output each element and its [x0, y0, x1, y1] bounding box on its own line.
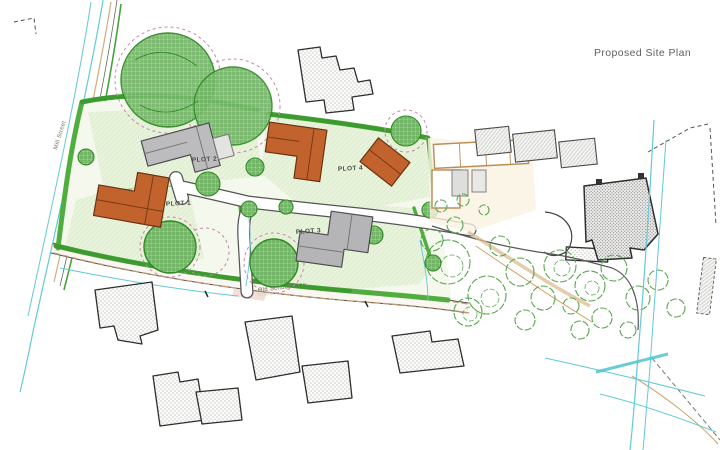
existing-building	[298, 47, 373, 113]
existing-building	[302, 361, 352, 403]
tree-canopy	[144, 221, 196, 273]
existing-building	[392, 331, 464, 373]
tree-canopy	[250, 239, 298, 287]
plot-1-label: PLOT 1	[166, 200, 191, 208]
plot-4-label: PLOT 4	[338, 165, 363, 173]
existing-outbuilding	[513, 130, 558, 162]
existing-outbuilding	[559, 138, 598, 168]
existing-outbuilding	[475, 126, 512, 155]
courtyard-complex	[428, 126, 597, 255]
plan-title: Proposed Site Plan	[594, 47, 691, 59]
existing-building	[95, 282, 158, 344]
existing-building	[196, 388, 242, 424]
mill-street-label: Mill Street	[53, 120, 68, 150]
existing-building	[245, 316, 300, 380]
site-plan-canvas: PLOT 2 PLOT 1 PLOT 4 PLOT 3	[0, 0, 720, 450]
site-plan-page: PLOT 2 PLOT 1 PLOT 4 PLOT 3	[0, 0, 720, 450]
existing-main-house	[584, 173, 658, 260]
plot-2-label: PLOT 2	[192, 156, 217, 164]
